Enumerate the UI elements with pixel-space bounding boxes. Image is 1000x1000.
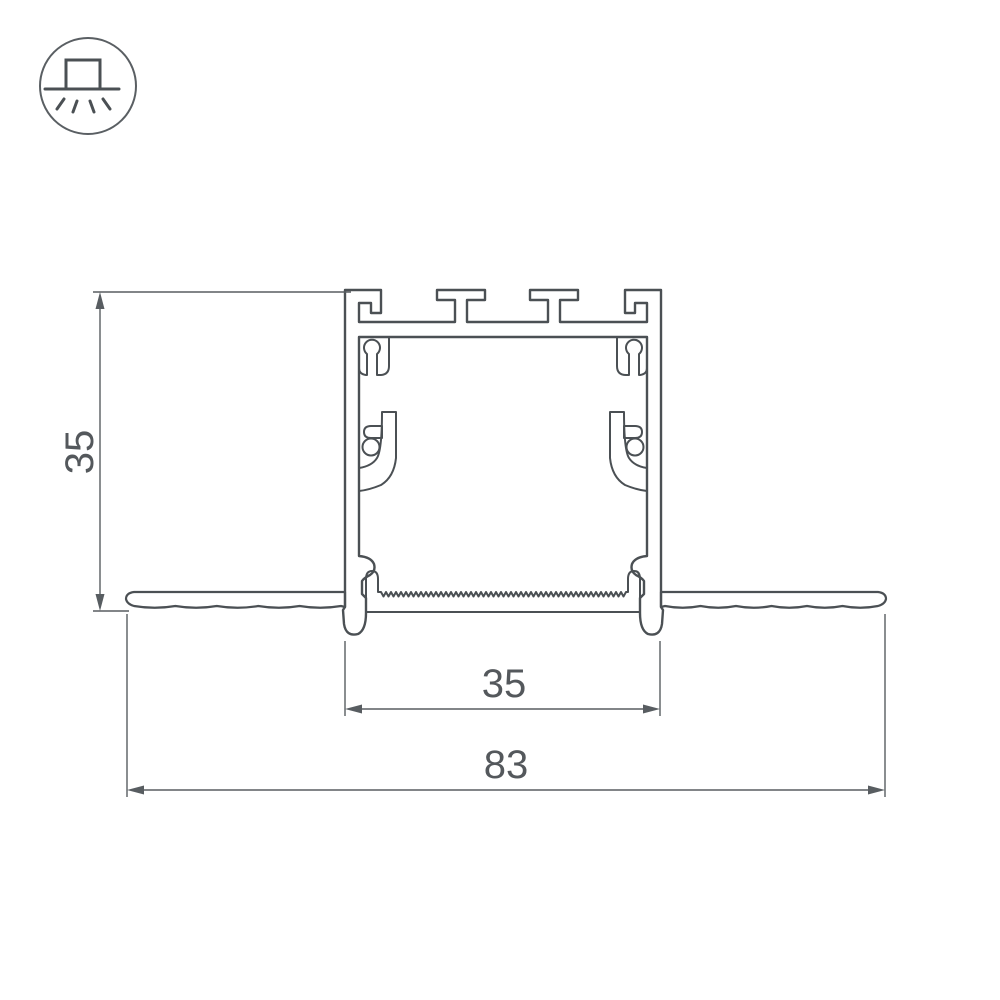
profile-cross-section bbox=[126, 290, 886, 635]
recessed-luminaire-icon bbox=[45, 60, 119, 112]
plaster-wing-right bbox=[661, 592, 886, 608]
screw-boss-left bbox=[359, 337, 389, 375]
drawing-canvas: 35 35 83 bbox=[0, 0, 1000, 1000]
arrowhead-right bbox=[643, 705, 660, 714]
arrowhead-down bbox=[96, 594, 105, 611]
technical-drawing: 35 35 83 bbox=[0, 0, 1000, 1000]
dimension-height: 35 bbox=[58, 292, 351, 611]
plaster-wing-left bbox=[126, 592, 345, 608]
mount-type-icon bbox=[40, 38, 136, 134]
serrated-floor bbox=[366, 571, 640, 612]
dimension-inner-width: 35 bbox=[345, 641, 660, 716]
spring-hook-left-keyhole bbox=[363, 439, 380, 456]
arrowhead-up bbox=[96, 292, 105, 309]
arrowhead-left bbox=[345, 705, 362, 714]
spring-hook-right-finger bbox=[624, 426, 642, 438]
arrowhead-right bbox=[868, 786, 885, 795]
arrowhead-left bbox=[127, 786, 144, 795]
screw-boss-right bbox=[617, 337, 647, 375]
spring-hook-left-finger bbox=[364, 426, 382, 438]
dimension-inner-width-value: 35 bbox=[482, 662, 527, 706]
profile-body bbox=[343, 290, 663, 635]
spring-hook-right-keyhole bbox=[627, 439, 644, 456]
dimension-overall-width-value: 83 bbox=[484, 743, 529, 787]
dimension-height-value: 35 bbox=[58, 430, 102, 475]
